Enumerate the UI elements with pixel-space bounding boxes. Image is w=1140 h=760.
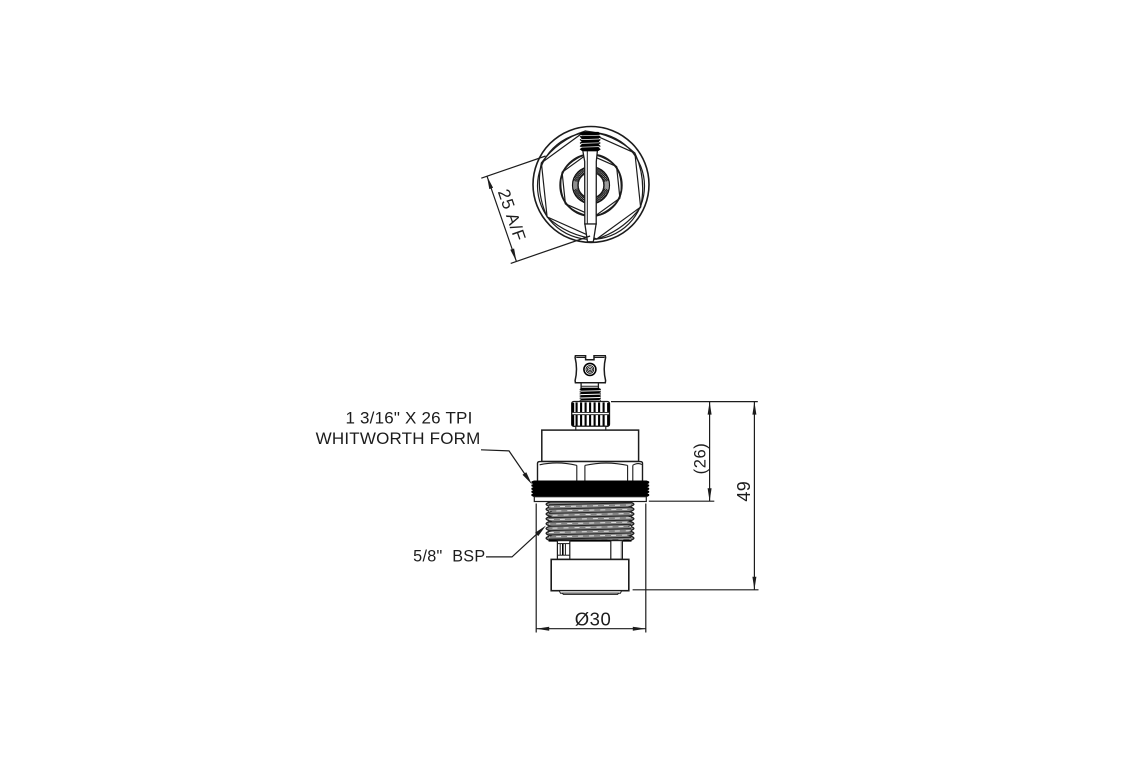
svg-text:(26): (26) bbox=[692, 443, 710, 475]
svg-text:1 3/16" X 26 TPI: 1 3/16" X 26 TPI bbox=[345, 408, 472, 427]
svg-text:WHITWORTH FORM: WHITWORTH FORM bbox=[316, 429, 481, 448]
svg-text:Ø30: Ø30 bbox=[575, 609, 611, 630]
svg-text:5/8" BSP: 5/8" BSP bbox=[413, 548, 485, 566]
svg-text:49: 49 bbox=[734, 481, 754, 502]
